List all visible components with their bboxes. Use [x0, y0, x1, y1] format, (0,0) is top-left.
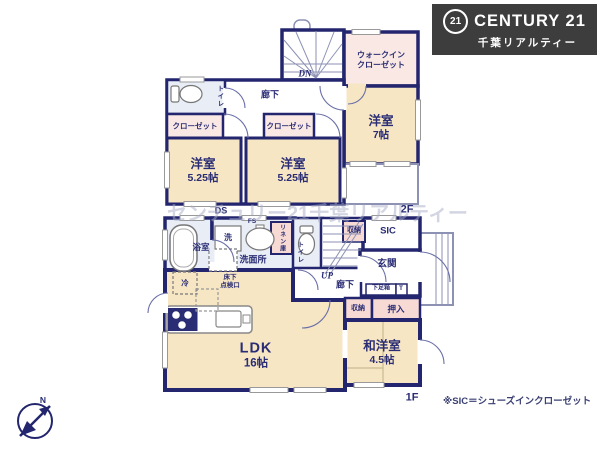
fridge-label: 冷 — [181, 279, 189, 288]
room-label-washroom: 洗面所 — [239, 255, 266, 266]
logo-row: 21 CENTURY 21 — [443, 9, 586, 34]
shoe-box-label: 下足箱 — [372, 285, 390, 292]
storage-top-label: 収納 — [347, 227, 361, 235]
entrance-label: 玄関 — [377, 258, 396, 269]
room-label-hallway1: 廊下 — [336, 280, 354, 291]
floor2-label: 2F — [401, 203, 414, 216]
room-label-washitsu: 和洋室 4.5帖 — [363, 339, 401, 367]
room-label-closet-right: クローゼット — [267, 122, 312, 131]
pipe-space-label: FS — [248, 218, 256, 226]
floor-plan-page: ウォークイン クローゼット 洋室 7帖 トイレ 廊下 クローゼット クローゼット… — [0, 0, 600, 450]
storage-bottom-label: 収納 — [351, 305, 365, 313]
room-label-wic: ウォークイン クローゼット — [357, 50, 405, 69]
room-label-closet-left: クローゼット — [173, 122, 218, 131]
room-label-toilet1: トイレ — [295, 241, 303, 264]
room-label-bedroom-right: 洋室 5.25帖 — [278, 157, 309, 185]
compass-north-label: N — [40, 395, 46, 405]
sic-label: SIC — [380, 225, 396, 236]
balcony — [344, 164, 418, 204]
room-label-bath: 浴室 — [192, 242, 209, 252]
washer-label: 洗 — [224, 233, 232, 243]
oshiire-label: 押入 — [387, 304, 404, 314]
room-label-hallway2: 廊下 — [261, 90, 279, 101]
duct-space-label: DS — [215, 206, 228, 217]
century21-logo: 21 CENTURY 21 千葉リアルティー — [432, 4, 597, 55]
room-label-toilet2: トイレ — [215, 85, 223, 108]
stairs-up-label: UP — [321, 271, 333, 282]
sic-note: ※SIC＝シューズインクローゼット — [443, 393, 591, 407]
century21-badge-icon: 21 — [443, 9, 468, 34]
room-label-bedroom-left: 洋室 5.25帖 — [188, 157, 219, 185]
stairs-down-label: DN — [299, 69, 312, 80]
logo-company-text: 千葉リアルティー — [478, 35, 577, 50]
shoe-box-t-label: T — [399, 285, 403, 293]
room-label-bedroom7: 洋室 7帖 — [368, 114, 393, 142]
floor-hatch-label: 床下 点検口 — [220, 274, 240, 290]
toilet2-icon — [171, 86, 202, 103]
logo-brand-text: CENTURY 21 — [474, 12, 586, 31]
floor-plan-drawing — [0, 0, 600, 450]
room-label-linen: リネン庫 — [277, 224, 284, 252]
room-label-ldk: LDK 16帖 — [240, 340, 273, 371]
compass — [6, 392, 64, 450]
floor1-label: 1F — [406, 391, 419, 404]
kitchen-counter-icon — [166, 306, 252, 333]
